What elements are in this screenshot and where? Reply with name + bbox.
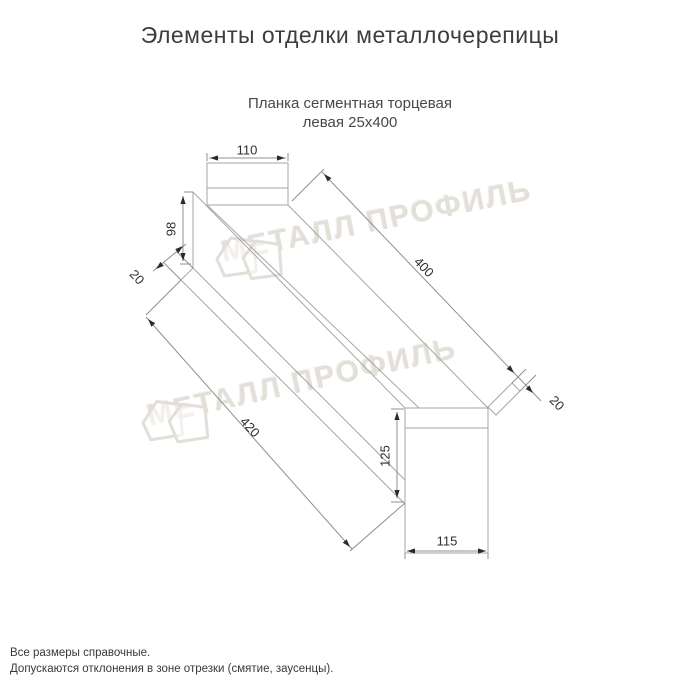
part-outline bbox=[181, 163, 520, 553]
footnote-line1: Все размеры справочные. bbox=[10, 645, 333, 661]
footnotes: Все размеры справочные. Допускаются откл… bbox=[10, 645, 333, 677]
dimension-arrows bbox=[148, 155, 533, 553]
dim-bottom-flange-width-label: 115 bbox=[437, 534, 458, 549]
footnote-line2: Допускаются отклонения в зоне отрезки (с… bbox=[10, 661, 333, 677]
dimension-lines bbox=[146, 153, 541, 559]
dim-left-web-height-label: 98 bbox=[164, 222, 179, 236]
part-drawing-svg bbox=[0, 0, 700, 700]
dim-top-flange-width-label: 110 bbox=[237, 143, 258, 158]
dim-right-web-height-label: 125 bbox=[378, 445, 393, 467]
drawing-page: Элементы отделки металлочерепицы Планка … bbox=[0, 0, 700, 700]
